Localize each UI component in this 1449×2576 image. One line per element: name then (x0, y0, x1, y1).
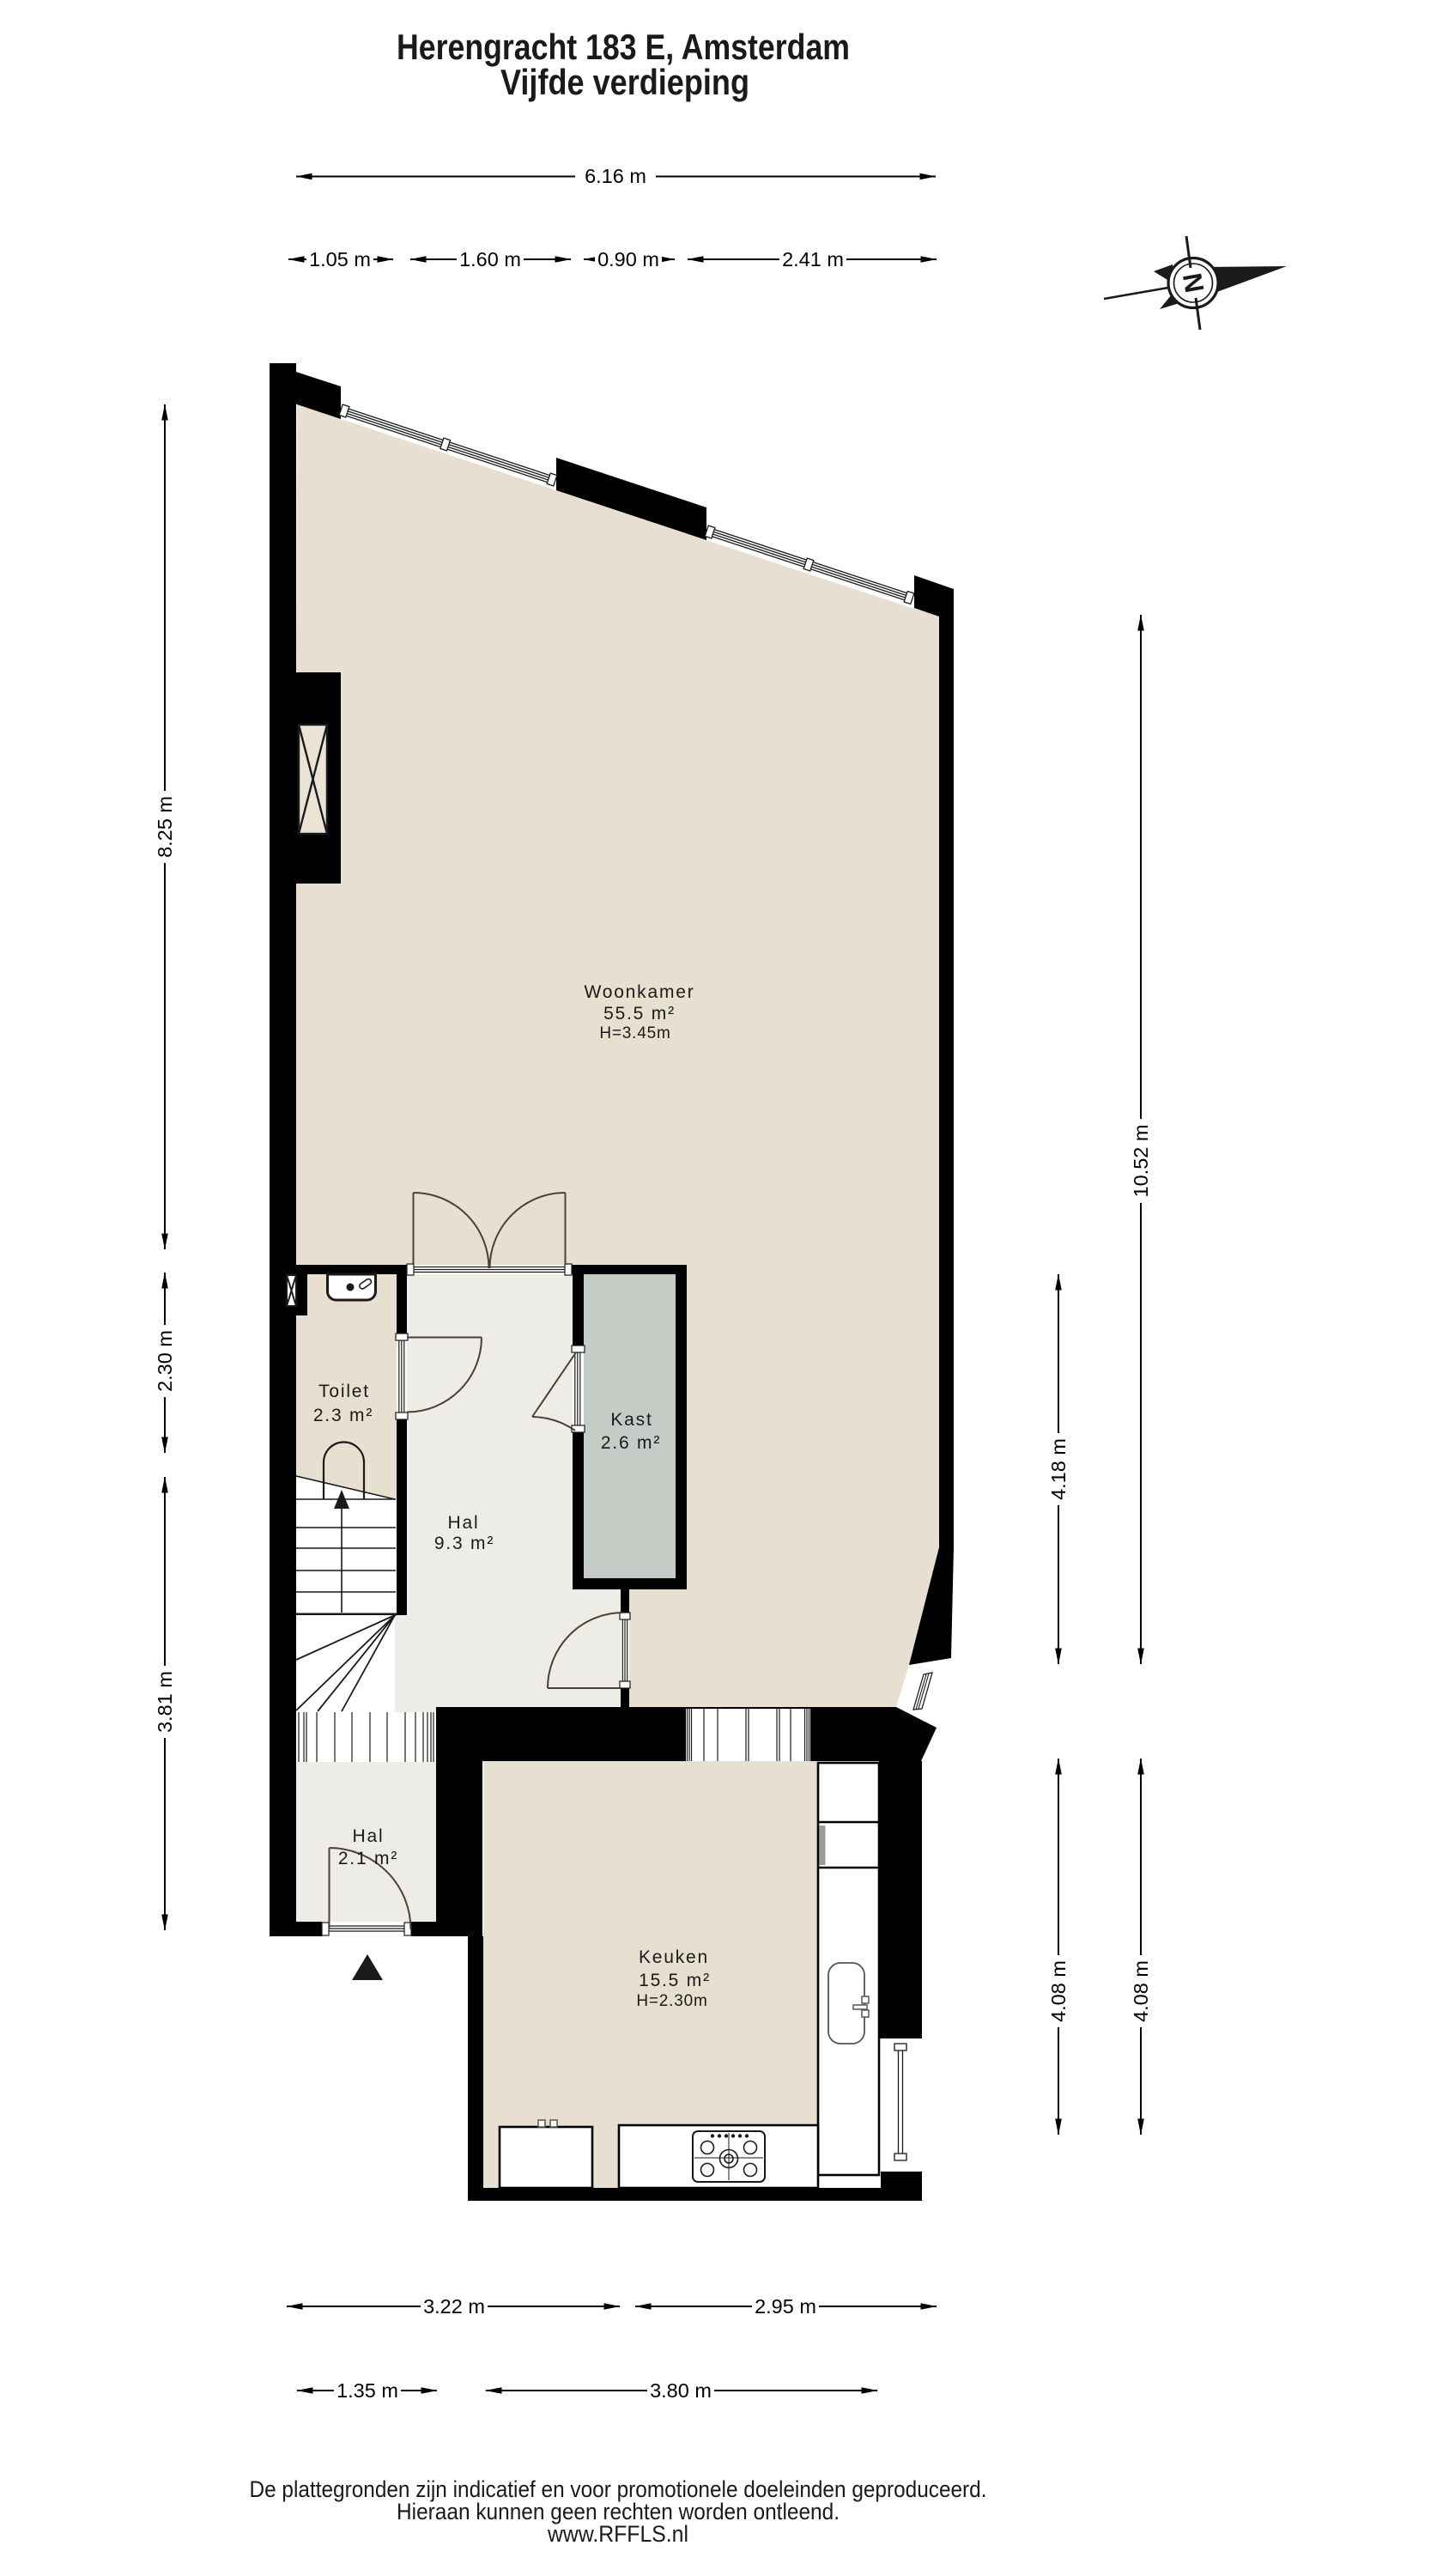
svg-text:Vijfde verdieping: Vijfde verdieping (500, 62, 749, 102)
svg-text:1.35 m: 1.35 m (336, 2379, 398, 2402)
svg-text:2.41 m: 2.41 m (782, 248, 844, 270)
svg-text:9.3 m²: 9.3 m² (434, 1534, 494, 1553)
svg-text:3.22 m: 3.22 m (423, 2295, 485, 2318)
svg-text:8.25 m: 8.25 m (154, 796, 176, 858)
svg-text:3.80 m: 3.80 m (650, 2379, 712, 2402)
svg-text:1.60 m: 1.60 m (459, 248, 521, 270)
svg-text:0.90 m: 0.90 m (597, 248, 659, 270)
svg-text:55.5 m²: 55.5 m² (603, 1004, 676, 1024)
svg-text:www.RFFLS.nl: www.RFFLS.nl (547, 2521, 688, 2547)
svg-text:2.95 m: 2.95 m (755, 2295, 816, 2318)
svg-text:Toilet: Toilet (318, 1382, 370, 1401)
svg-text:3.81 m: 3.81 m (154, 1671, 176, 1733)
svg-text:2.3 m²: 2.3 m² (313, 1406, 373, 1425)
svg-text:15.5 m²: 15.5 m² (639, 1971, 711, 1990)
svg-text:2.30 m: 2.30 m (154, 1330, 176, 1392)
svg-text:Hal: Hal (353, 1826, 385, 1846)
svg-text:Woonkamer: Woonkamer (584, 982, 694, 1002)
svg-text:1.05 m: 1.05 m (309, 248, 371, 270)
svg-text:10.52 m: 10.52 m (1130, 1125, 1152, 1198)
svg-text:Herengracht 183 E, Amsterdam: Herengracht 183 E, Amsterdam (397, 27, 850, 67)
svg-text:4.08 m: 4.08 m (1047, 1960, 1070, 2022)
svg-text:H=3.45m: H=3.45m (599, 1024, 670, 1042)
svg-text:Hal: Hal (448, 1513, 480, 1533)
svg-text:2.6 m²: 2.6 m² (601, 1433, 661, 1453)
svg-text:4.18 m: 4.18 m (1047, 1438, 1070, 1500)
svg-text:6.16 m: 6.16 m (585, 165, 646, 187)
svg-text:Kast: Kast (610, 1410, 652, 1430)
svg-text:2.1 m²: 2.1 m² (338, 1849, 398, 1868)
svg-text:H=2.30m: H=2.30m (636, 1992, 707, 2010)
svg-text:Keuken: Keuken (639, 1947, 709, 1967)
svg-text:4.08 m: 4.08 m (1130, 1960, 1152, 2022)
